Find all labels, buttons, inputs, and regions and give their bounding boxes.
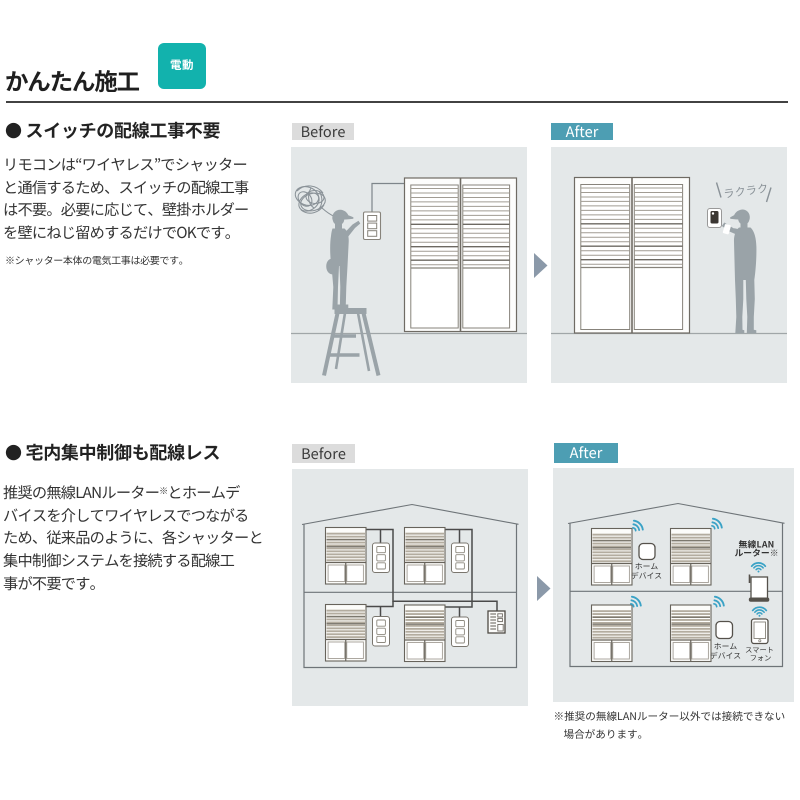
svg-text:ルーター※: ルーター※ [735,546,779,559]
svg-text:デバイス: デバイス [631,570,662,581]
svg-text:フォン: フォン [750,654,772,664]
svg-text:デバイス: デバイス [710,650,741,661]
